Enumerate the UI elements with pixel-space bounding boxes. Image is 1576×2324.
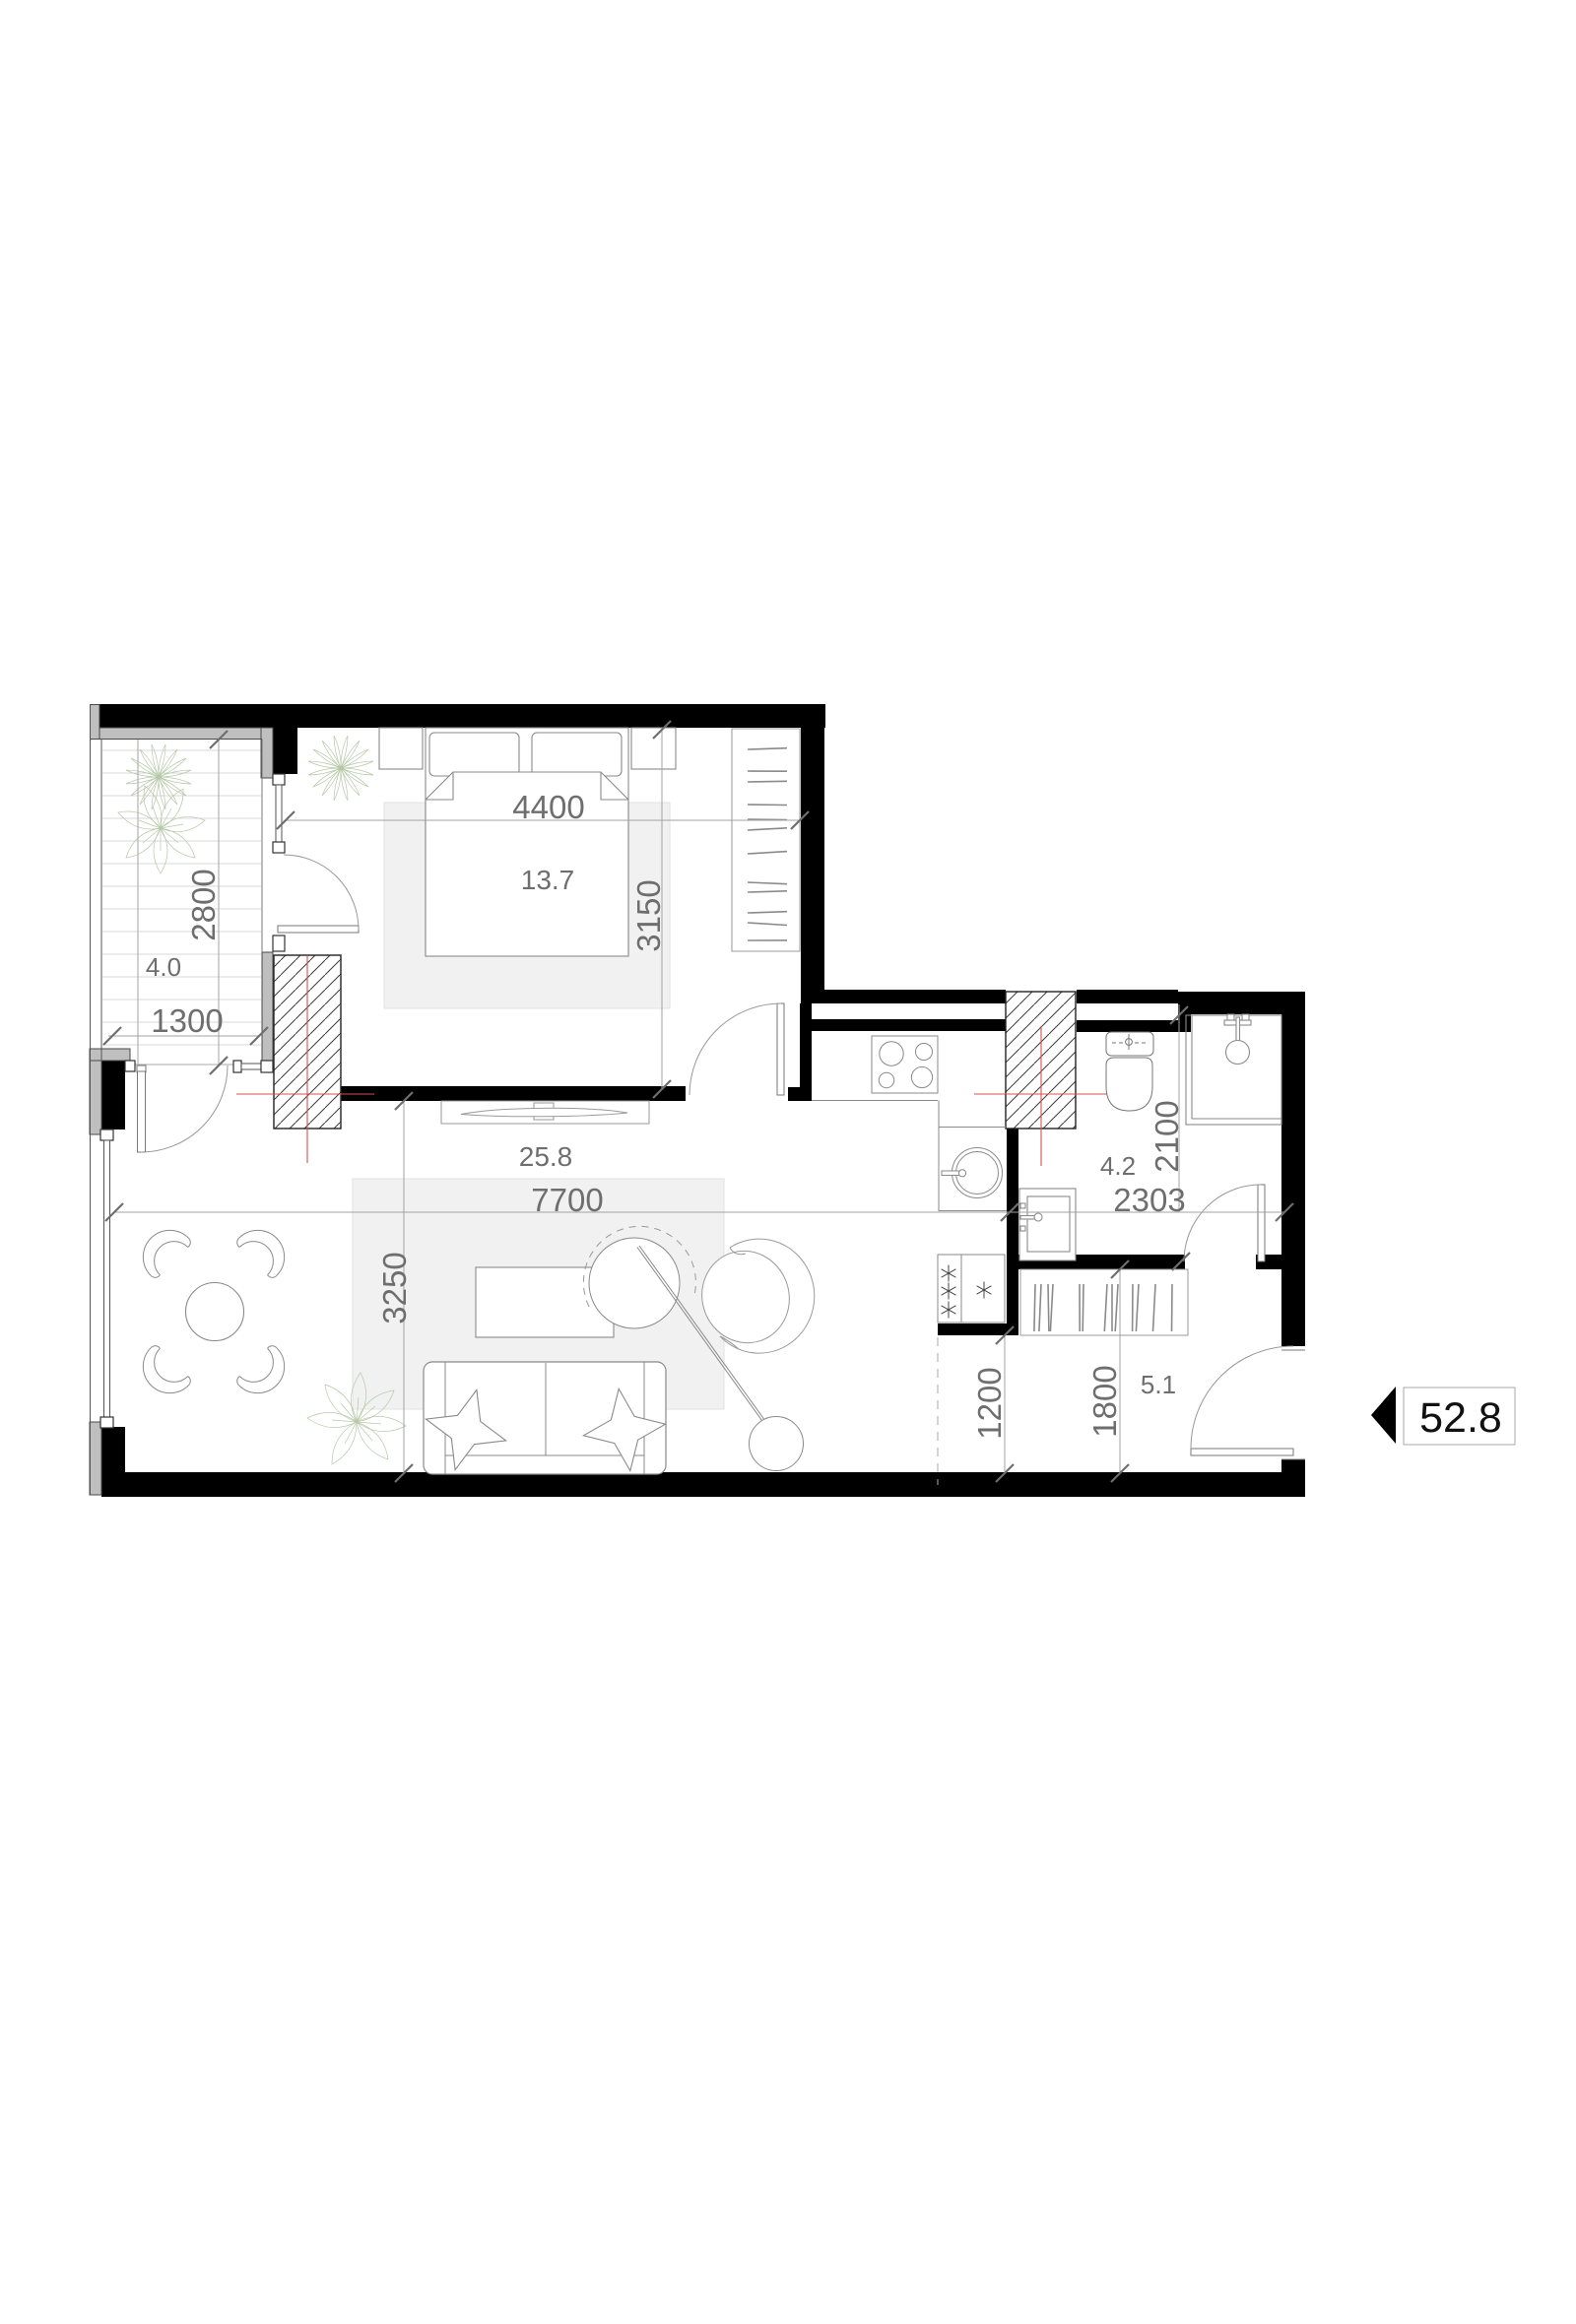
svg-text:1200: 1200 <box>971 1367 1008 1439</box>
svg-text:3250: 3250 <box>376 1252 413 1323</box>
svg-text:7700: 7700 <box>531 1182 603 1218</box>
svg-text:3150: 3150 <box>630 879 667 951</box>
svg-text:4400: 4400 <box>512 789 584 825</box>
svg-text:25.8: 25.8 <box>519 1141 573 1172</box>
svg-text:1300: 1300 <box>151 1002 223 1039</box>
svg-text:2800: 2800 <box>185 869 222 940</box>
svg-text:2100: 2100 <box>1149 1100 1185 1172</box>
svg-text:5.1: 5.1 <box>1141 1370 1176 1399</box>
svg-text:13.7: 13.7 <box>521 865 575 895</box>
svg-text:2303: 2303 <box>1113 1182 1185 1218</box>
svg-text:1800: 1800 <box>1086 1365 1123 1437</box>
svg-text:52.8: 52.8 <box>1419 1394 1502 1442</box>
svg-text:4.2: 4.2 <box>1100 1151 1136 1181</box>
svg-text:4.0: 4.0 <box>146 952 181 982</box>
